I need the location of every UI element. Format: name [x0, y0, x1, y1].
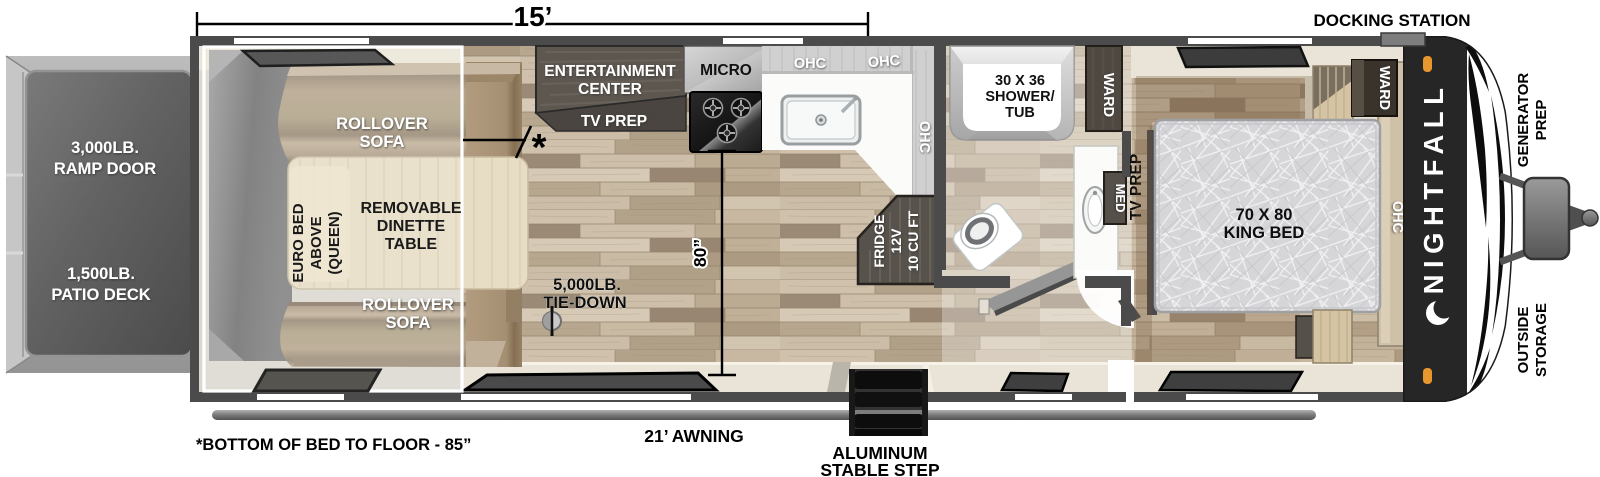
svg-text:OHC: OHC	[916, 121, 932, 154]
svg-text:DOCKING STATION: DOCKING STATION	[1313, 11, 1470, 30]
svg-text:*: *	[532, 127, 547, 169]
svg-text:WARD: WARD	[1376, 66, 1392, 110]
svg-text:RAMP DOOR: RAMP DOOR	[54, 160, 156, 178]
svg-text:12V: 12V	[888, 228, 904, 254]
svg-text:KING BED: KING BED	[1224, 224, 1305, 242]
svg-text:STORAGE: STORAGE	[1533, 303, 1550, 377]
svg-text:ENTERTAINMENT: ENTERTAINMENT	[544, 63, 676, 80]
svg-text:(QUEEN): (QUEEN)	[326, 211, 343, 274]
svg-text:EURO BED: EURO BED	[290, 203, 307, 282]
svg-text:OUTSIDE: OUTSIDE	[1515, 307, 1532, 374]
svg-text:PREP: PREP	[1533, 100, 1550, 141]
svg-text:WARD: WARD	[1100, 73, 1116, 117]
svg-text:1,500LB.: 1,500LB.	[67, 265, 135, 283]
svg-text:SHOWER/: SHOWER/	[985, 89, 1054, 105]
svg-text:30 X 36: 30 X 36	[995, 73, 1045, 89]
svg-text:CENTER: CENTER	[578, 81, 642, 98]
svg-text:SOFA: SOFA	[360, 133, 405, 151]
svg-text:MED: MED	[1113, 184, 1128, 213]
svg-text:3,000LB.: 3,000LB.	[71, 139, 139, 157]
svg-text:TIE-DOWN: TIE-DOWN	[543, 294, 626, 312]
svg-text:FRIDGE: FRIDGE	[871, 215, 887, 268]
svg-text:PATIO DECK: PATIO DECK	[51, 286, 150, 304]
svg-text:OHC: OHC	[1389, 201, 1405, 234]
svg-text:ABOVE: ABOVE	[308, 216, 325, 269]
svg-text:80”: 80”	[690, 239, 710, 267]
svg-text:DINETTE: DINETTE	[377, 218, 446, 235]
svg-text:REMOVABLE: REMOVABLE	[360, 200, 461, 217]
svg-text:ROLLOVER: ROLLOVER	[362, 296, 454, 314]
svg-text:GENERATOR: GENERATOR	[1515, 73, 1532, 168]
svg-text:NIGHTFALL: NIGHTFALL	[1418, 82, 1449, 295]
svg-text:TV PREP: TV PREP	[581, 113, 647, 130]
svg-text:SOFA: SOFA	[386, 314, 431, 332]
svg-text:TUB: TUB	[1005, 105, 1035, 121]
svg-text:OHC: OHC	[794, 56, 827, 72]
svg-text:STABLE STEP: STABLE STEP	[820, 460, 940, 477]
svg-text:TABLE: TABLE	[385, 236, 437, 253]
svg-text:70 X 80: 70 X 80	[1236, 206, 1293, 224]
svg-text:15’: 15’	[514, 1, 553, 32]
svg-text:*BOTTOM OF BED TO FLOOR - 85”: *BOTTOM OF BED TO FLOOR - 85”	[196, 436, 471, 454]
svg-text:ROLLOVER: ROLLOVER	[336, 115, 428, 133]
svg-text:OHC: OHC	[867, 53, 901, 71]
svg-text:21’ AWNING: 21’ AWNING	[644, 426, 744, 446]
svg-text:MICRO: MICRO	[700, 62, 752, 79]
svg-text:10 CU FT: 10 CU FT	[905, 210, 921, 271]
svg-text:5,000LB.: 5,000LB.	[553, 276, 621, 294]
